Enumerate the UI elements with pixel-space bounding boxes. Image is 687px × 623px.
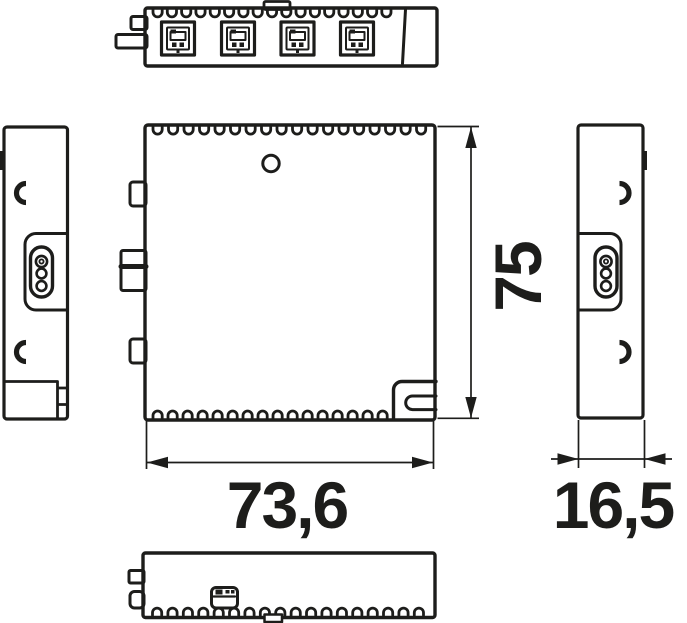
socket-hole — [351, 43, 356, 48]
crescent-cutout — [17, 343, 27, 362]
socket-hole — [172, 43, 177, 48]
drawing-canvas: 73,6 75 — [0, 0, 687, 623]
crescent-cutout — [620, 184, 630, 203]
terminal-socket — [341, 22, 374, 55]
terminal-socket — [162, 22, 195, 55]
width-dimension: 73,6 — [147, 421, 434, 542]
connector-pin — [601, 269, 611, 279]
socket-hole — [232, 43, 237, 48]
vent-opening — [153, 411, 387, 418]
connector-pin — [37, 269, 47, 279]
connector-pin-center — [604, 259, 608, 263]
connector-pin — [36, 256, 47, 267]
height-dimension-label: 75 — [481, 242, 555, 312]
front-view — [121, 125, 436, 420]
arrowhead-left — [147, 457, 168, 468]
end-section-divider — [403, 10, 406, 64]
width-dimension-label: 73,6 — [227, 468, 348, 542]
socket-key — [356, 50, 359, 54]
socket-key — [237, 50, 240, 54]
arrowhead-right — [412, 457, 433, 468]
power-connector — [595, 247, 617, 297]
connector-pin — [600, 256, 611, 267]
right-side-view — [578, 125, 647, 418]
vent-row — [153, 608, 424, 615]
connector-pin-center — [39, 259, 43, 263]
socket-key — [177, 50, 180, 54]
power-connector — [31, 247, 53, 297]
left-side-view — [0, 127, 68, 419]
extension-lines — [579, 420, 645, 468]
depth-dimension-label: 16,5 — [553, 468, 674, 542]
config-port-pin — [226, 590, 230, 594]
terminal-socket — [281, 22, 314, 55]
bottom-view — [129, 553, 435, 622]
config-port-pin — [231, 590, 235, 594]
mounting-hole — [263, 155, 279, 171]
socket-hole — [240, 43, 245, 48]
crescent-cutout — [620, 343, 630, 362]
socket-hole — [359, 43, 364, 48]
top-view — [116, 2, 437, 67]
socket-hole — [180, 43, 185, 48]
vent-opening — [153, 127, 426, 134]
arrowhead-top — [465, 127, 476, 148]
socket-key — [296, 50, 299, 54]
crescent-cutout — [17, 184, 27, 203]
socket-hole — [292, 43, 297, 48]
screw-mount-slot — [406, 396, 436, 410]
terminal-connectors — [162, 22, 374, 55]
socket-hole — [299, 43, 304, 48]
extension-lines — [438, 127, 480, 419]
mounting-tab — [121, 251, 146, 291]
arrowhead-bottom — [465, 397, 476, 418]
housing-outline — [145, 125, 435, 420]
mounting-tab — [116, 35, 147, 49]
arrowhead-right — [645, 453, 666, 464]
terminal-socket — [222, 22, 255, 55]
vent-opening — [153, 608, 424, 615]
arrowhead-left — [558, 453, 579, 464]
connector-pin — [601, 281, 611, 291]
screw-mount-hook — [394, 382, 437, 419]
rail-foot-detail — [4, 382, 68, 419]
vent-row — [153, 127, 426, 134]
connector-pin — [37, 281, 47, 291]
depth-dimension: 16,5 — [551, 420, 674, 542]
bottom-latch-tab — [265, 615, 283, 623]
dimension-drawing: 73,6 75 — [0, 0, 687, 623]
height-dimension: 75 — [438, 127, 556, 419]
connector-boss — [579, 234, 622, 311]
vent-row — [153, 411, 387, 418]
config-port-pin — [216, 590, 223, 595]
